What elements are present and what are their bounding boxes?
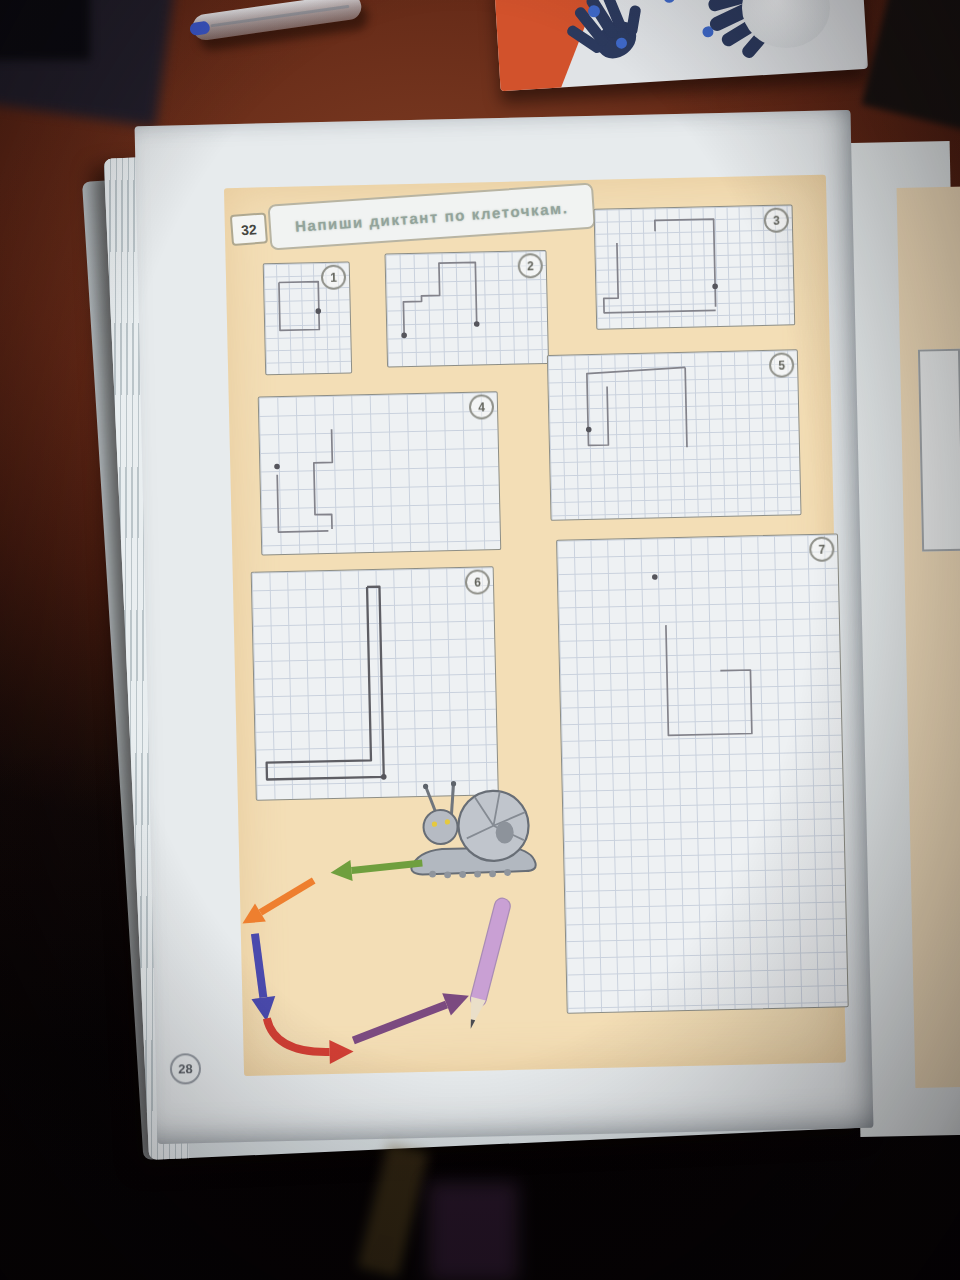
- purple-upright-arrow: [352, 993, 470, 1041]
- activity-panel: 32 Напиши диктант по клеточкам. 1 2 3 4 …: [224, 175, 846, 1076]
- pencil-illustration: [468, 906, 505, 1029]
- red-curve-arrow: [267, 1017, 354, 1066]
- workbook-page: 32 Напиши диктант по клеточкам. 1 2 3 4 …: [135, 110, 874, 1144]
- open-workbook: 32 Напиши диктант по клеточкам. 1 2 3 4 …: [0, 0, 960, 1280]
- green-left-arrow: [330, 858, 422, 881]
- next-page-panel: [897, 187, 960, 1088]
- page-number-badge: 28: [170, 1053, 202, 1085]
- page-number: 28: [178, 1061, 193, 1076]
- object-in-shadow: [428, 1182, 518, 1280]
- next-page-box: [918, 349, 960, 552]
- photo-of-workbook-on-desk: 32 Напиши диктант по клеточкам. 1 2 3 4 …: [0, 0, 960, 1280]
- blue-down-arrow: [250, 933, 276, 1021]
- orange-downleft-arrow: [242, 880, 315, 923]
- route-arrows: [224, 175, 846, 1076]
